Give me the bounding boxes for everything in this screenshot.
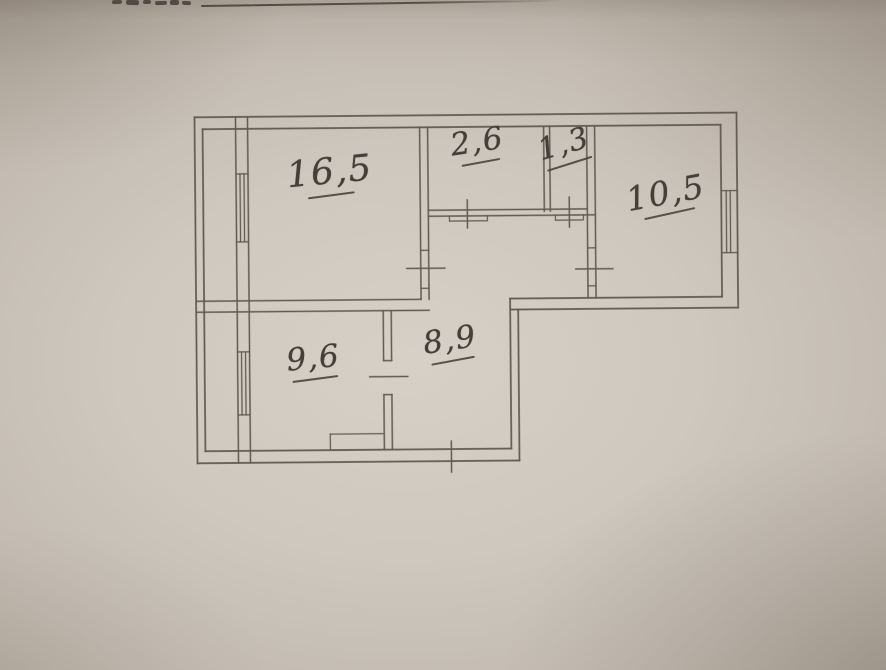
room-area-value: 2,6: [448, 120, 507, 164]
room-area-label: 1,3: [535, 123, 595, 172]
room-area-value: 10,5: [623, 166, 708, 219]
room-area-label: 9,6: [285, 341, 342, 383]
room-area-label: 2,6: [448, 123, 507, 168]
room-area-label: 16,5: [285, 150, 375, 200]
room-area-label: 8,9: [421, 321, 480, 366]
room-area-value: 9,6: [285, 338, 342, 379]
floor-plan-photo: 16,5 2,6 1,3 10,5 9,6 8,9: [0, 0, 886, 670]
room-area-value: 1,3: [534, 120, 594, 168]
room-area-labels: 16,5 2,6 1,3 10,5 9,6 8,9: [0, 0, 886, 670]
room-area-label: 10,5: [624, 169, 709, 222]
room-area-value: 16,5: [285, 147, 375, 196]
room-area-value: 8,9: [421, 318, 480, 362]
